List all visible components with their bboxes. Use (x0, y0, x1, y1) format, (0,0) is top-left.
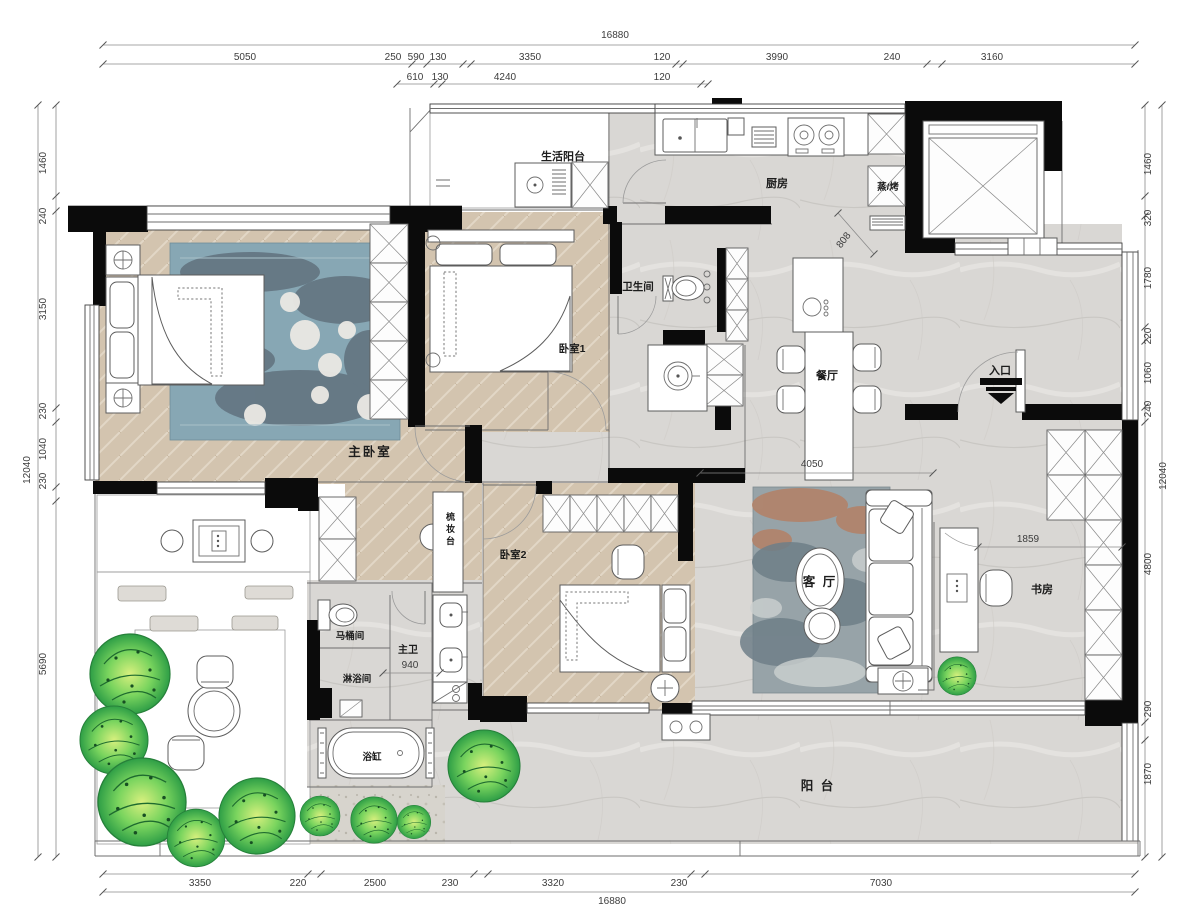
dim-bottom: 220 (290, 878, 307, 889)
dim-bottom: 3320 (542, 878, 565, 889)
sliding-door-balcony (692, 701, 1085, 715)
elevator (923, 121, 1057, 255)
window-master-top (147, 206, 390, 230)
study-desk (940, 528, 978, 652)
double-sink-counter (433, 595, 468, 703)
kitchen-sink (663, 118, 727, 152)
dim-top-total: 16880 (601, 30, 629, 41)
room-label-dining: 餐厅 (815, 368, 838, 382)
palm-icon (448, 730, 520, 802)
window-right-upper (1122, 252, 1138, 420)
dim-left: 1040 (38, 437, 49, 460)
floor-balcony (432, 710, 1138, 844)
dim-top: 120 (654, 52, 671, 63)
dim-top: 3350 (519, 52, 542, 63)
dim-top: 3990 (766, 52, 789, 63)
bedroom2-wardrobe (543, 495, 678, 532)
tree-icon (90, 634, 170, 714)
room-label-laundry-balcony: 生活阳台 (541, 149, 585, 163)
kitchen-small-appliance (728, 118, 744, 135)
dim-top: 250 (385, 52, 402, 63)
bedroom2-chair (612, 545, 644, 579)
kitchen-island (793, 258, 843, 332)
window-balcony-right (1122, 723, 1138, 841)
room-label-toilet-room: 马桶间 (336, 630, 365, 642)
room-label-master-bedroom: 主卧室 (348, 444, 392, 459)
dim-bottom: 2500 (364, 878, 387, 889)
deck-chair-2 (168, 736, 204, 770)
dim-bath: 940 (402, 660, 419, 671)
tree-icon (167, 809, 225, 867)
balcony-items (662, 714, 710, 740)
kitchen-stove (788, 118, 844, 156)
dim-right-total: 12040 (1158, 462, 1169, 490)
dim-top: 3160 (981, 52, 1004, 63)
room-label-shower: 淋浴间 (343, 673, 372, 685)
dim-left: 240 (38, 207, 49, 224)
dining-table (805, 332, 853, 480)
room-label-living: 客 厅 (802, 574, 837, 589)
dim-right: 1060 (1143, 361, 1154, 384)
room-label-kitchen: 厨房 (766, 176, 788, 190)
study-chair (980, 570, 1012, 606)
floor-corridor (465, 425, 610, 485)
room-label-bathroom: 卫生间 (622, 280, 654, 293)
kitchen-vent (752, 127, 776, 147)
closet-wardrobe (319, 497, 356, 581)
dim-right: 4800 (1143, 552, 1154, 575)
window-master-left (85, 305, 99, 480)
room-label-balcony: 阳 台 (801, 778, 835, 793)
stepping-stones (118, 586, 293, 631)
room-label-bedroom2: 卧室2 (500, 548, 527, 561)
dim-right: 1460 (1143, 152, 1154, 175)
dim-left-total: 12040 (22, 456, 33, 484)
entry-cabinet (1047, 430, 1085, 520)
room-label-vanity: 梳妆台 (445, 511, 456, 548)
study-bookshelf (1085, 430, 1122, 700)
dim-top2: 4240 (494, 72, 517, 83)
dim-top: 5050 (234, 52, 257, 63)
laundry-fixtures (436, 163, 571, 207)
deck-table (188, 685, 240, 737)
laundry-cabinet (572, 162, 608, 208)
room-label-study: 书房 (1031, 582, 1053, 596)
dim-bottom: 230 (671, 878, 688, 889)
dim-left: 3150 (38, 297, 49, 320)
dim-top: 240 (884, 52, 901, 63)
sofa (866, 490, 932, 682)
dim-right: 240 (1143, 400, 1154, 417)
window-master-garden (157, 482, 265, 494)
dim-top2: 130 (432, 72, 449, 83)
dim-left: 230 (38, 472, 49, 489)
room-label-entrance: 入口 (989, 364, 1011, 377)
balcony-sink (662, 714, 710, 740)
room-label-bedroom1: 卧室1 (559, 342, 586, 355)
room-label-bathtub: 浴缸 (362, 751, 382, 763)
shrub-icon (351, 797, 397, 843)
toilet (663, 276, 704, 301)
dim-desk: 1859 (1017, 534, 1040, 545)
room-label-steam-oven: 蒸/烤 (877, 181, 899, 193)
window-kitchen-top (655, 104, 905, 113)
dim-bottom: 230 (442, 878, 459, 889)
bedroom1-bed (426, 230, 574, 372)
dim-left: 5690 (38, 652, 49, 675)
dim-living-width: 4050 (801, 459, 824, 470)
dim-bottom: 7030 (870, 878, 893, 889)
dim-left: 230 (38, 402, 49, 419)
dim-top: 590 (408, 52, 425, 63)
shower-drain (340, 700, 362, 717)
shrub-icon (300, 796, 340, 836)
dim-left: 1460 (38, 151, 49, 174)
dim-right: 220 (1143, 327, 1154, 344)
window-bedroom2-bottom (527, 703, 649, 713)
master-wardrobe (370, 224, 408, 419)
dim-top2: 610 (407, 72, 424, 83)
room-label-master-bath: 主卫 (398, 643, 418, 656)
dim-bottom-total: 16880 (598, 896, 626, 907)
floor-plan-page: 16880 5050 250 590 130 3350 120 3990 240… (0, 0, 1200, 918)
vanity-sink (648, 345, 707, 411)
tree-icon (219, 778, 295, 854)
kitchen-lower-counter (870, 216, 905, 230)
floor-plan-drawing: 16880 5050 250 590 130 3350 120 3990 240… (0, 0, 1200, 918)
dim-right: 1870 (1143, 762, 1154, 785)
dim-right: 320 (1143, 209, 1154, 226)
dim-top: 130 (430, 52, 447, 63)
shrub-icon (397, 805, 431, 839)
rail-laundry-top (430, 104, 658, 113)
dim-top2: 120 (654, 72, 671, 83)
deck-chair-1 (197, 656, 233, 688)
dim-right: 290 (1143, 700, 1154, 717)
potted-plant-icon (938, 657, 976, 695)
dim-bottom: 3350 (189, 878, 212, 889)
dim-right: 1780 (1143, 266, 1154, 289)
